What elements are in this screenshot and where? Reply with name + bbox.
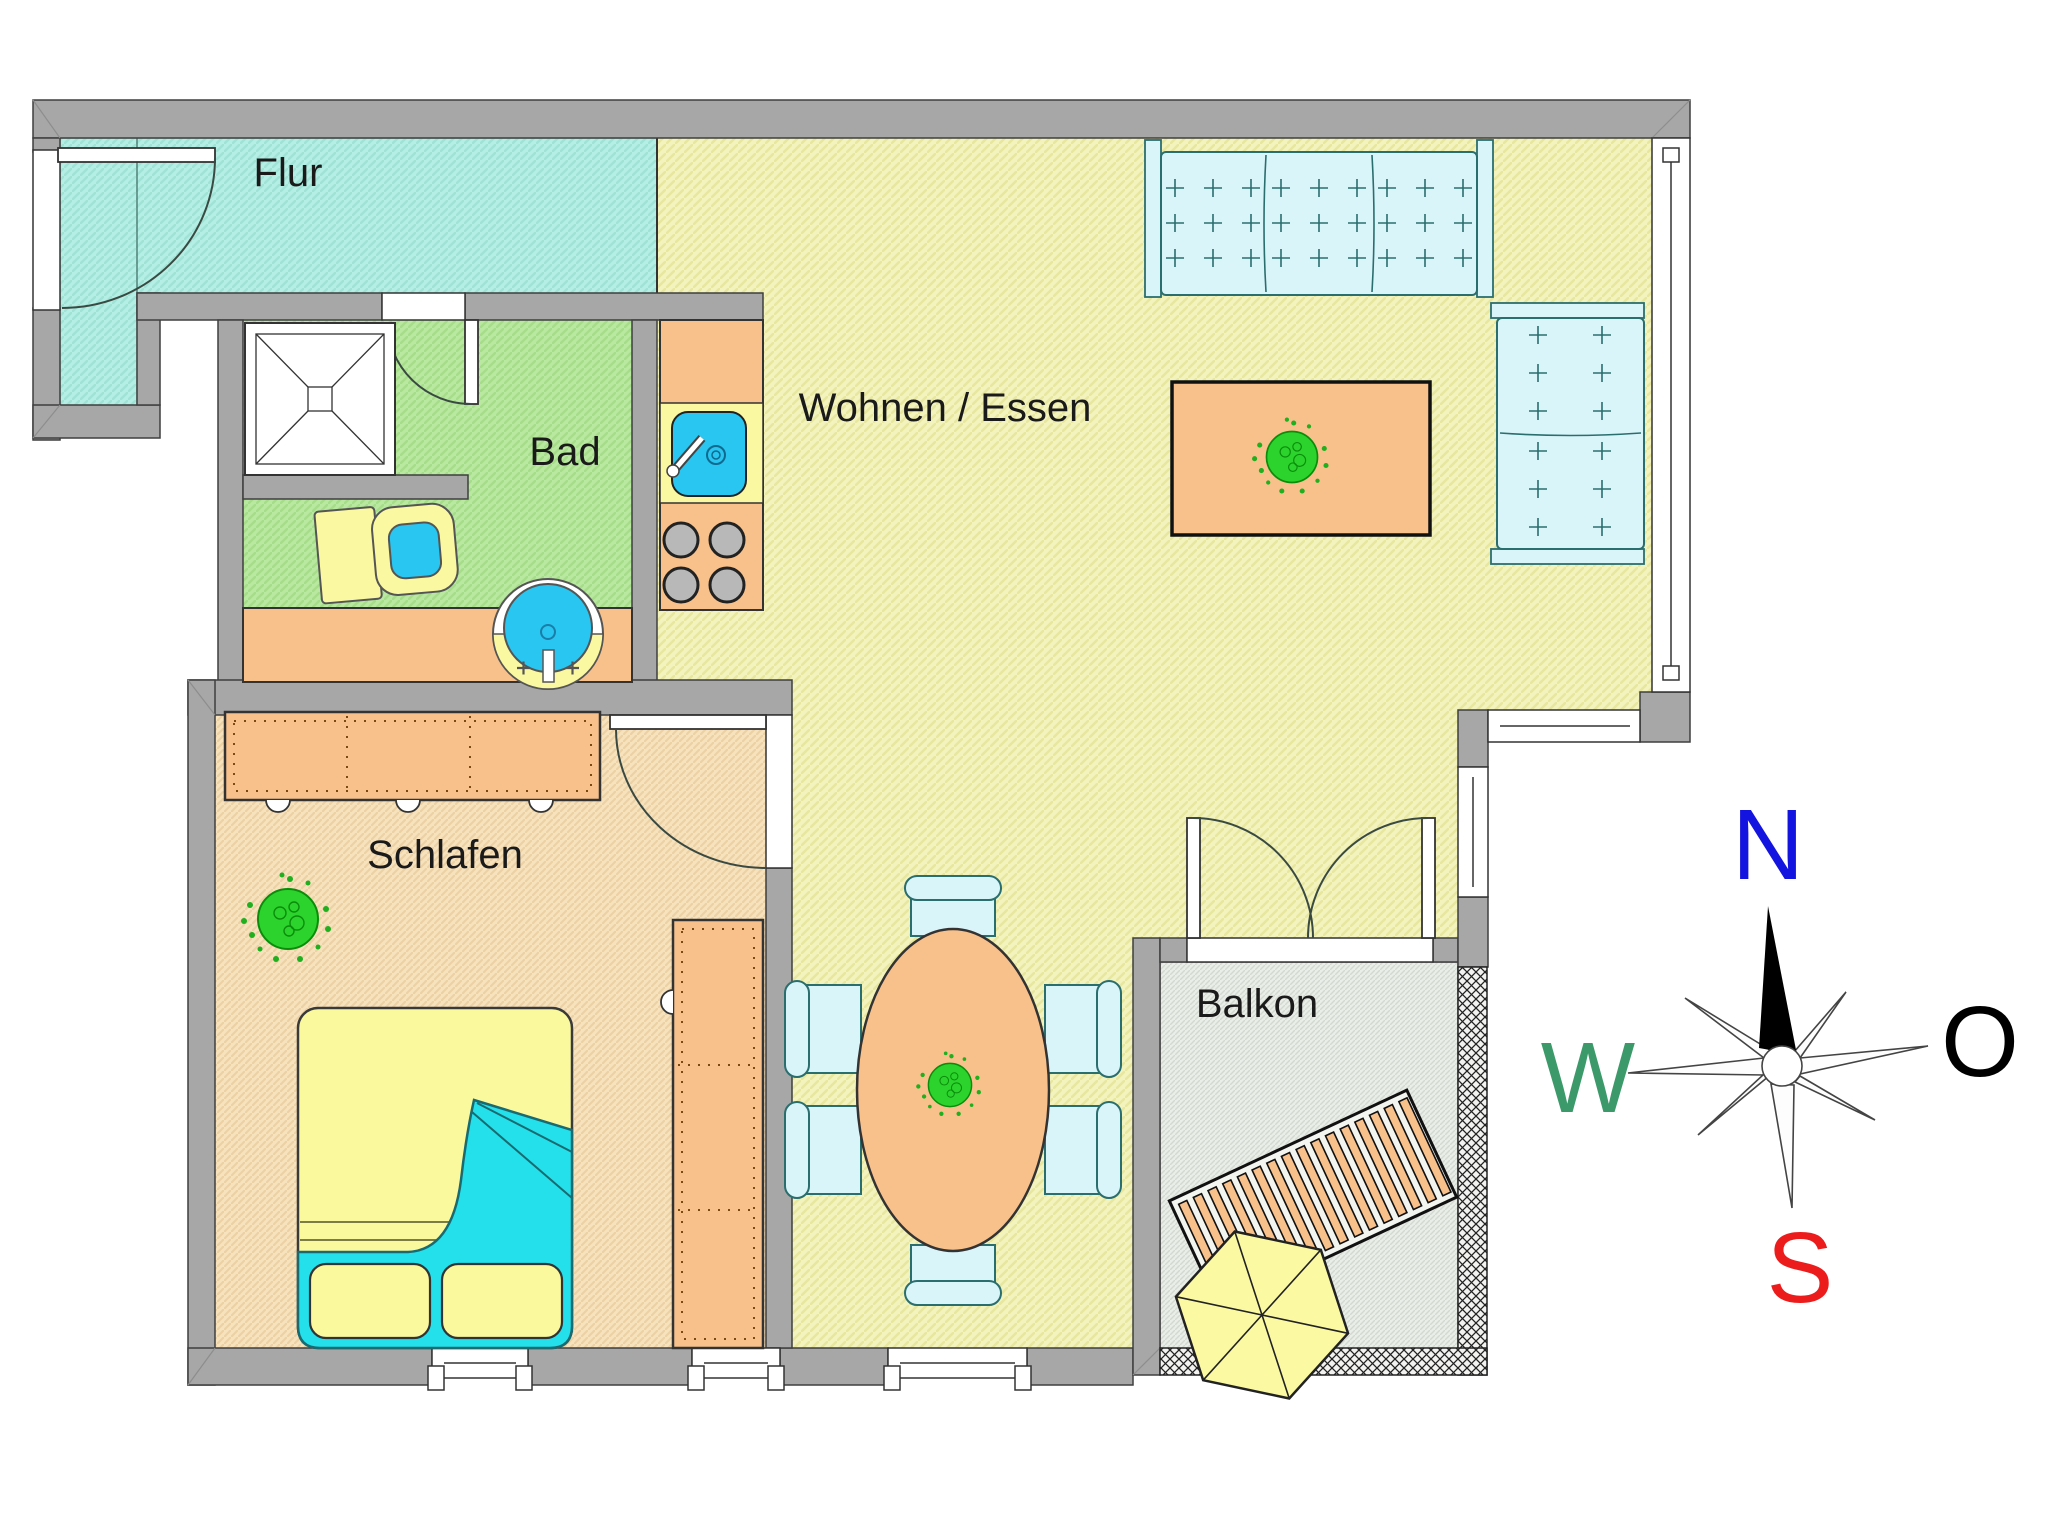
wall-bad-left — [218, 320, 243, 682]
window-cap — [688, 1366, 704, 1390]
room-label-flur: Flur — [254, 151, 323, 195]
kitchen-sink-icon — [667, 412, 746, 496]
wall-bottom-b — [528, 1348, 692, 1385]
balcony-railing-right — [1458, 967, 1487, 1375]
wall-bottom-d — [1027, 1348, 1133, 1385]
flur-floor-extension — [60, 138, 137, 408]
wall-bottom-a — [188, 1348, 432, 1385]
entry-door-opening — [33, 150, 60, 310]
compass-needle-north — [1759, 906, 1797, 1055]
floor-plan-canvas: N O W S Flur Bad Wohnen / Essen Schlafen… — [0, 0, 2048, 1538]
wall-schlafen-top — [188, 680, 792, 715]
wall-balkon-door-left — [1160, 938, 1187, 962]
compass-letter-south: S — [1767, 1212, 1834, 1324]
dining-chair-back — [785, 1102, 809, 1198]
wall-corner-b — [1458, 897, 1488, 967]
dining-chair — [803, 1106, 861, 1194]
window-right-cap-bottom — [1663, 666, 1679, 680]
schlafen-door-leaf — [610, 715, 766, 729]
wall-ext-bottom — [33, 405, 160, 438]
bad-door-opening — [382, 293, 465, 320]
wall-bottom-c — [780, 1348, 888, 1385]
window-right-cap-top — [1663, 148, 1679, 162]
dining-chair — [1045, 985, 1103, 1073]
entry-door-leaf — [58, 148, 215, 162]
toilet-icon — [314, 500, 459, 604]
pillow — [310, 1264, 430, 1338]
window-cap — [516, 1366, 532, 1390]
compass-letter-east: O — [1941, 986, 2019, 1098]
balcony-door-leaf-right — [1422, 818, 1435, 938]
room-label-wohnen: Wohnen / Essen — [799, 386, 1092, 430]
sofa-large — [1145, 140, 1493, 297]
kitchen — [660, 320, 763, 610]
wall-schlafen-left — [188, 680, 215, 1385]
dresser — [225, 712, 600, 812]
bad-door-leaf — [465, 320, 478, 404]
wall-corner-br — [1640, 692, 1690, 742]
compass-letter-north: N — [1732, 789, 1804, 901]
dining-chair-back — [905, 1281, 1001, 1305]
wall-balkon-left — [1133, 938, 1160, 1375]
wall-shower-stub — [243, 475, 468, 499]
window-cap — [884, 1366, 900, 1390]
pillow — [442, 1264, 562, 1338]
floor-plan: N O W S Flur Bad Wohnen / Essen Schlafen… — [0, 0, 2048, 1538]
compass-rose: N O W S — [1541, 789, 2019, 1324]
dining-chair-back — [905, 876, 1001, 900]
balcony-door-threshold — [1187, 938, 1433, 962]
window-cap — [428, 1366, 444, 1390]
window-cap — [768, 1366, 784, 1390]
tall-cabinet — [661, 920, 763, 1348]
compass-hub — [1762, 1046, 1802, 1086]
dining-chair-back — [785, 981, 809, 1077]
room-label-schlafen: Schlafen — [367, 833, 523, 877]
wall-balkon-door-right — [1433, 938, 1458, 962]
wall-flur-bottom-b — [465, 293, 763, 320]
washbasin-icon — [493, 579, 603, 689]
wall-top — [33, 100, 1690, 138]
window-cap — [1015, 1366, 1031, 1390]
balcony-door-leaf-left — [1187, 818, 1200, 938]
room-label-bad: Bad — [529, 430, 600, 474]
dining-chair — [1045, 1106, 1103, 1194]
room-label-balkon: Balkon — [1196, 982, 1318, 1026]
bed — [298, 1008, 572, 1348]
compass-letter-west: W — [1541, 1022, 1636, 1134]
dining-chair — [803, 985, 861, 1073]
wall-bad-right — [632, 320, 657, 682]
shower-icon — [245, 323, 395, 475]
dining-chair-back — [1097, 981, 1121, 1077]
wall-flur-bottom-a — [137, 293, 382, 320]
sofa-small — [1491, 303, 1644, 564]
wall-corner-a — [1458, 710, 1488, 767]
schlafen-door-opening — [766, 715, 792, 868]
dining-chair-back — [1097, 1102, 1121, 1198]
